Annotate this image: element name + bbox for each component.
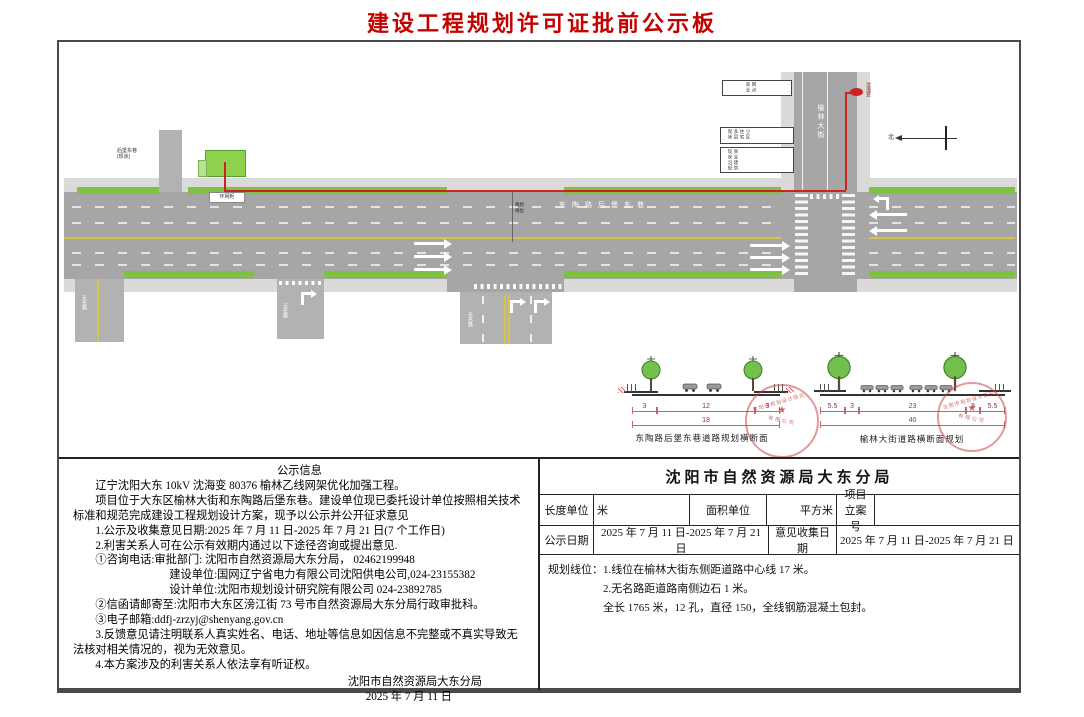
crosswalk	[842, 194, 855, 277]
lane-marking	[530, 296, 532, 344]
vroad-lane-line	[827, 72, 828, 192]
side-street-label: 后堡东巷 (现状)	[117, 148, 137, 160]
lane-arrow-right	[414, 242, 444, 245]
notice-line: 4.本方案涉及的利害关系人依法享有听证权。	[73, 658, 526, 673]
alignment-label: 规划线位：	[548, 561, 603, 577]
edge-line	[504, 296, 506, 344]
vertical-road-name: 榆林大街	[815, 104, 825, 140]
vertical-road-lower-stub	[794, 279, 857, 292]
equipment-label: 环网柜	[219, 194, 234, 200]
lane-arrow-turn-left	[873, 197, 889, 210]
stop-dots	[279, 281, 322, 285]
notice-line: ③电子邮箱:ddfj-zrzyj@shenyang.gov.cn	[73, 613, 526, 628]
side-street-up	[159, 130, 182, 192]
site-plan-drawing: 后堡东巷 (现状) 榆林大街	[59, 42, 1019, 457]
area-unit-label: 面积单位	[690, 495, 767, 525]
green-belt	[869, 271, 1015, 278]
alignment-notes: 1.线位在榆林大街东侧距道路中心线 17 米。 2.无名路距道路南侧边石 1 米…	[603, 561, 873, 618]
lane-arrow-turn-right	[301, 292, 317, 305]
authority-name: 沈阳市自然资源局大东分局	[540, 459, 1019, 495]
unnamed-road-label: 无名路	[282, 303, 289, 318]
area-unit-value: 平方米	[767, 495, 837, 525]
length-unit-label: 长度单位	[540, 495, 594, 525]
lane-arrow-right	[414, 268, 444, 271]
car-icon	[682, 383, 698, 392]
info-section: 公示信息 辽宁沈阳大东 10kV 沈海变 80376 榆林乙线网架优化加强工程。…	[59, 457, 1019, 690]
alignment-note-2: 2.无名路距道路南侧边石 1 米。	[603, 580, 873, 596]
center-line	[869, 237, 1015, 239]
publish-date-label: 公示日期	[540, 526, 594, 554]
edge-line	[97, 279, 99, 342]
vroad-lane-line	[802, 72, 803, 192]
lane-marking	[869, 264, 1015, 266]
notice-signature-date: 2025 年 7 月 11 日	[73, 690, 526, 705]
tree-icon	[740, 356, 766, 392]
lane-marking	[869, 252, 1015, 254]
notice-line: 1.公示及收集意见日期:2025 年 7 月 11 日-2025 年 7 月 2…	[73, 524, 526, 539]
green-belt	[869, 187, 1015, 194]
lane-marking	[72, 252, 778, 254]
tree-icon	[638, 356, 664, 392]
length-unit-value: 米	[594, 495, 690, 525]
dimension-value: 3	[632, 402, 657, 412]
lane-marking	[72, 222, 778, 224]
building-box-2: 现状多层住宅小区	[720, 127, 794, 144]
notice-board-sheet: 建设工程规划许可证批前公示板 后堡东巷 (现状) 榆林大街	[0, 0, 1084, 717]
lane-marking	[869, 222, 1015, 224]
notice-line: ①咨询电话:审批部门: 沈阳市自然资源局大东分局， 02462199948	[73, 553, 526, 568]
notice-heading: 公示信息	[73, 464, 526, 479]
feedback-date-value: 2025 年 7 月 11 日-2025 年 7 月 21 日	[837, 526, 1019, 554]
north-arrow-icon	[902, 138, 957, 139]
equipment-building	[205, 150, 246, 177]
substation-label: 沈海变	[865, 82, 872, 97]
building-box-1: 商业网点	[722, 80, 792, 96]
lane-arrow-turn-right	[534, 300, 550, 313]
north-arrow-tick	[945, 126, 947, 150]
notice-line: 建设单位:国网辽宁省电力有限公司沈阳供电公司,024-23155382	[169, 568, 526, 583]
branch-street-3: 无名路	[460, 292, 552, 344]
north-label: 北	[888, 132, 894, 141]
building-box-3: 现状沿街商业建筑	[720, 147, 794, 173]
project-file-no-value	[875, 495, 1019, 525]
sheet-frame: 后堡东巷 (现状) 榆林大街	[57, 40, 1021, 693]
authority-table: 沈阳市自然资源局大东分局 长度单位 米 面积单位 平方米 项目立案号 公示日期 …	[540, 459, 1019, 690]
lane-arrow-turn-right	[510, 300, 526, 313]
car-icon	[875, 384, 889, 393]
car-icon	[890, 384, 904, 393]
dimension-value: 12	[657, 402, 755, 412]
crosswalk	[795, 194, 808, 277]
alignment-note-3: 全长 1765 米，12 孔，直径 150，全线钢筋混凝土包封。	[603, 599, 873, 615]
publish-date-value: 2025 年 7 月 11 日-2025 年 7 月 21 日	[594, 526, 769, 554]
branch-street-2: 无名路	[277, 279, 324, 339]
table-row-alignment: 规划线位： 1.线位在榆林大街东侧距道路中心线 17 米。 2.无名路距道路南侧…	[540, 555, 1019, 690]
branch-street-1: 无名路	[75, 279, 124, 342]
notice-line: 项目位于大东区榆林大街和东陶路后堡东巷。建设单位现已委托设计单位按照相关技术标准…	[73, 494, 526, 524]
pedestrian-figures	[820, 384, 829, 392]
public-notice-text: 公示信息 辽宁沈阳大东 10kV 沈海变 80376 榆林乙线网架优化加强工程。…	[59, 459, 540, 690]
table-row-dates: 公示日期 2025 年 7 月 11 日-2025 年 7 月 21 日 意见收…	[540, 526, 1019, 555]
lane-marking	[72, 264, 778, 266]
alignment-note-1: 1.线位在榆林大街东侧距道路中心线 17 米。	[603, 561, 873, 577]
page-title: 建设工程规划许可证批前公示板	[0, 6, 1084, 38]
notice-signature-org: 沈阳市自然资源局大东分局	[73, 675, 526, 690]
green-belt	[124, 271, 254, 278]
building-box-label: 现状沿街商业建筑	[721, 148, 739, 173]
lane-arrow-left	[877, 213, 907, 216]
project-file-no-label: 项目立案号	[837, 495, 875, 525]
lane-arrow-right	[750, 244, 782, 247]
green-belt	[564, 271, 781, 278]
marker-label: 规划线位	[515, 202, 526, 213]
dimension-value: 5.5	[820, 402, 845, 412]
notice-line: ②信函请邮寄至:沈阳市大东区滂江街 73 号市自然资源局大东分局行政审批科。	[73, 598, 526, 613]
table-row-units: 长度单位 米 面积单位 平方米 项目立案号	[540, 495, 1019, 526]
lane-marking	[72, 206, 778, 208]
car-icon	[924, 384, 938, 393]
unnamed-road-label: 无名路	[467, 312, 474, 327]
notice-line: 辽宁沈阳大东 10kV 沈海变 80376 榆林乙线网架优化加强工程。	[73, 479, 526, 494]
main-road-name: 东陶路后堡东巷	[559, 200, 650, 210]
feedback-date-label: 意见收集日期	[769, 526, 837, 554]
red-seal-stamp: 沈阳市规划设计研究院 ★ 有限公司	[937, 382, 1007, 452]
lane-arrow-right	[414, 255, 444, 258]
equipment-label-box: 环网柜	[209, 192, 245, 203]
car-icon	[860, 384, 874, 393]
dimension-value: 3	[845, 402, 859, 412]
cable-route-drop	[224, 162, 226, 192]
pedestrian-figures	[627, 384, 636, 392]
car-icon	[909, 384, 923, 393]
vertical-road-upper	[794, 72, 857, 192]
section-hatch	[618, 387, 626, 393]
center-line	[64, 237, 781, 239]
stop-dots	[474, 284, 562, 289]
lane-arrow-right	[750, 268, 782, 271]
building-box-label: 现状多层住宅小区	[721, 128, 751, 142]
lane-arrow-right	[750, 256, 782, 259]
marker-line	[512, 192, 513, 242]
building-box-label: 商业网点	[723, 81, 757, 95]
notice-line: 设计单位:沈阳市规划设计研究院有限公司 024-23892785	[169, 583, 526, 598]
unnamed-road-label: 无名路	[81, 295, 88, 310]
stop-dots	[810, 194, 841, 199]
cable-route-main	[224, 190, 846, 192]
lane-marking	[869, 206, 1015, 208]
car-icon	[706, 383, 722, 392]
equipment-building-step	[198, 160, 207, 177]
cable-route-north	[845, 92, 847, 190]
notice-line: 2.利害关系人可在公示有效期内通过以下途径咨询或提出意见.	[73, 539, 526, 554]
red-seal-stamp: 沈阳市规划设计研究院 ★ 有限公司	[745, 384, 819, 457]
notice-line: 3.反馈意见请注明联系人真实姓名、电话、地址等信息如因信息不完整或不真实导致无法…	[73, 628, 526, 658]
green-belt	[324, 271, 447, 278]
green-belt	[77, 187, 159, 194]
lane-marking	[482, 296, 484, 344]
lane-arrow-left	[877, 229, 907, 232]
substation-marker	[850, 88, 863, 96]
